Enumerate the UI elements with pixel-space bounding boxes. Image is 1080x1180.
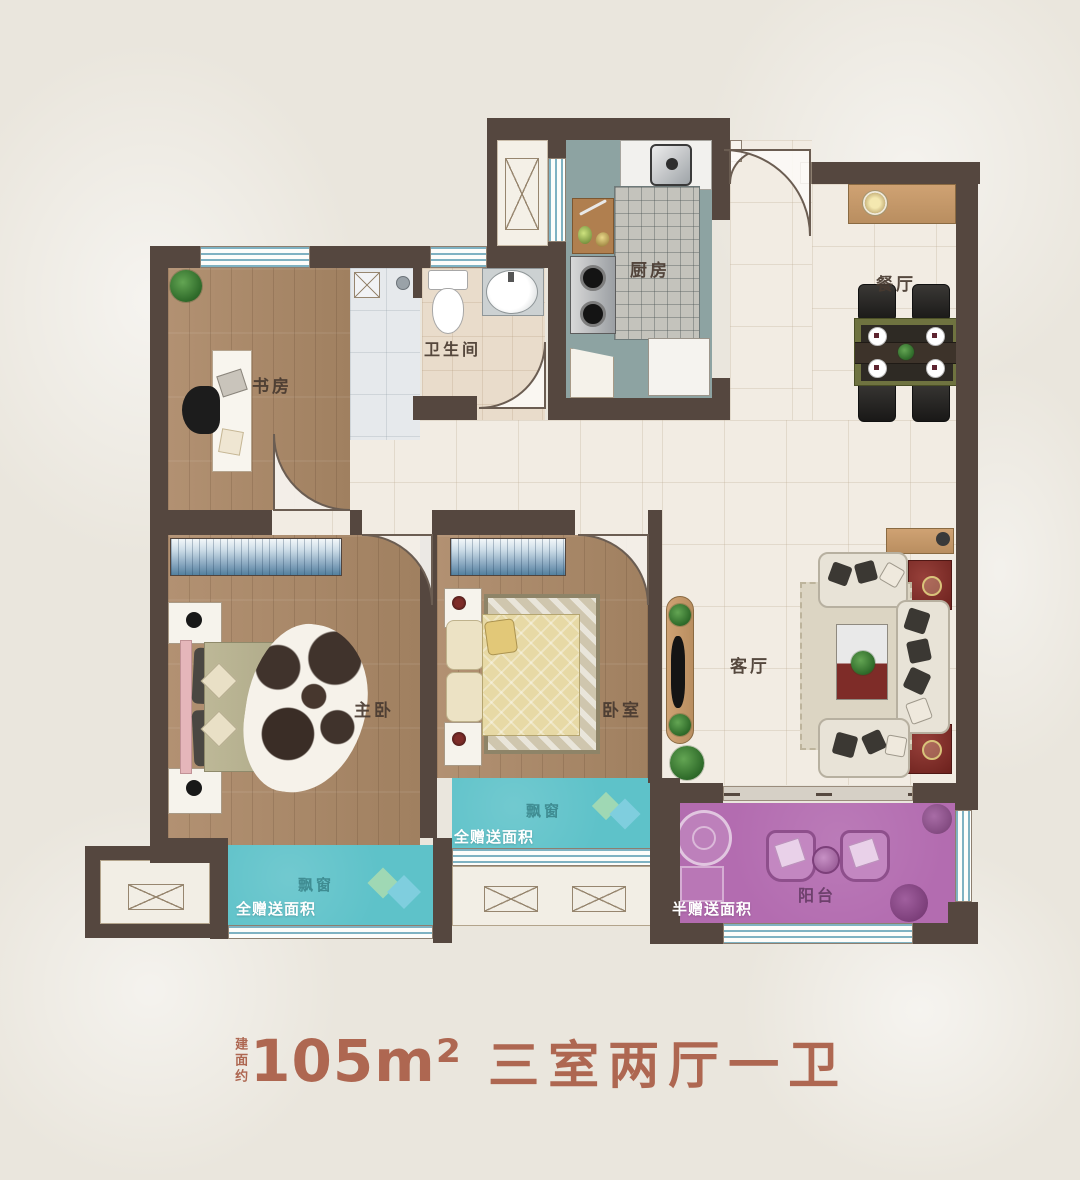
bay-window-label: 飘窗 — [298, 874, 334, 895]
dining-chair — [912, 284, 950, 322]
balcony-bottom-window — [723, 923, 913, 944]
wall — [955, 783, 978, 810]
room-label-bathroom: 卫生间 — [424, 336, 481, 360]
bed-pillow — [446, 672, 484, 722]
sofa-pillow — [884, 734, 907, 757]
title-layout: 三室两厅一卫 — [488, 1024, 848, 1098]
sofa-pillow — [827, 561, 853, 587]
sofa-pillow — [832, 732, 859, 759]
room-label-study: 书房 — [252, 372, 292, 397]
wall — [948, 902, 978, 944]
door-post — [730, 140, 742, 162]
bedroom2-wardrobe — [450, 538, 566, 576]
gift-area-label-full: 全赠送面积 — [236, 898, 316, 919]
dining-chair — [912, 380, 950, 422]
wall — [420, 535, 437, 838]
chair-towel — [848, 838, 880, 869]
nightstand-lamp — [452, 732, 466, 746]
ac-platform-center — [452, 866, 657, 926]
console-plant — [669, 604, 691, 626]
toilet-bowl — [432, 288, 464, 334]
stove — [570, 256, 616, 334]
lamp — [922, 740, 942, 760]
coffee-table-plant — [851, 651, 875, 675]
wall — [350, 510, 362, 535]
dining-chair — [858, 380, 896, 422]
room-label-living: 客厅 — [730, 652, 770, 677]
balcony-chair — [766, 830, 816, 882]
wall — [487, 140, 497, 246]
wall — [150, 246, 168, 863]
washing-machine-door — [692, 826, 716, 850]
tv — [671, 636, 685, 708]
decor-plate — [862, 190, 888, 216]
gift-area-label-full: 全赠送面积 — [454, 826, 534, 847]
master-wardrobe — [170, 538, 342, 576]
wall — [487, 118, 730, 140]
balcony-table — [812, 846, 840, 874]
wall — [650, 783, 723, 803]
washer-pedestal — [680, 866, 724, 902]
wall — [812, 162, 980, 184]
balcony-plant — [890, 884, 928, 922]
balcony-side-window — [955, 810, 972, 902]
sofa-pillow — [854, 560, 878, 584]
sofa-pillow — [905, 697, 933, 725]
wall — [712, 140, 730, 220]
bedroom2-bay-window-frame — [452, 848, 657, 866]
title-bar: 建面约 105m² 三室两厅一卫 — [0, 1024, 1080, 1098]
vegetables — [578, 226, 592, 244]
ac-platform-symbol — [572, 886, 626, 912]
wall — [432, 510, 575, 535]
study-plant — [170, 270, 202, 302]
plate — [868, 359, 887, 378]
lamp — [922, 576, 942, 596]
title-prefix: 建面约 — [232, 1037, 246, 1085]
bath-faucet — [508, 272, 514, 282]
floorplan-page: { "title": { "prefix": "建面约", "area": "1… — [0, 0, 1080, 1164]
plate — [926, 327, 945, 346]
balcony-chair — [840, 830, 890, 882]
toilet — [428, 270, 468, 290]
wall — [650, 803, 663, 944]
sofa-top — [818, 552, 908, 608]
study-window — [200, 246, 310, 268]
sofa-pillow — [878, 561, 905, 588]
wall — [648, 510, 662, 783]
table-centerpiece — [898, 344, 914, 360]
study-chair — [182, 386, 220, 434]
kitchen-shaft-window — [548, 158, 566, 242]
room-label-dining: 餐厅 — [876, 270, 916, 295]
fridge — [648, 338, 710, 396]
shower-head — [396, 276, 410, 290]
shelf-lamp — [936, 532, 950, 546]
wall — [85, 846, 228, 860]
bathroom-window — [430, 246, 487, 268]
kitchen-faucet — [666, 158, 678, 170]
console-plant — [669, 714, 691, 736]
title-area: 105m² — [250, 1027, 462, 1095]
wall — [663, 923, 723, 944]
sofa-bottom — [818, 718, 910, 778]
wall — [413, 268, 422, 298]
plate — [868, 327, 887, 346]
balcony-plant — [922, 804, 952, 834]
bay-window-label: 飘窗 — [526, 800, 562, 821]
master-bay-window-frame — [228, 925, 433, 939]
nightstand-lamp — [452, 596, 466, 610]
floor-drain — [354, 272, 380, 298]
master-bed-headboard — [180, 640, 192, 774]
door-post — [800, 162, 812, 184]
wall — [150, 510, 272, 535]
sofa-main — [896, 600, 950, 734]
room-label-bedroom2: 卧室 — [602, 696, 642, 721]
wall — [433, 838, 452, 943]
ac-platform-symbol — [484, 886, 538, 912]
room-label-kitchen: 厨房 — [630, 256, 670, 281]
blanket-pillow — [484, 618, 518, 656]
room-label-master: 主卧 — [354, 696, 394, 721]
sofa-pillow — [861, 729, 888, 756]
wall — [413, 396, 477, 420]
wall — [85, 924, 228, 938]
stove-burner — [580, 301, 606, 327]
ac-platform-symbol — [128, 884, 184, 910]
wall — [956, 184, 978, 784]
living-plant — [670, 746, 704, 780]
bed-pillow — [446, 620, 484, 670]
nightstand-lamp — [186, 612, 202, 628]
stove-burner — [580, 265, 606, 291]
wall — [560, 398, 730, 420]
plate — [926, 359, 945, 378]
room-label-balcony: 阳台 — [798, 882, 836, 906]
gift-area-label-half: 半赠送面积 — [672, 898, 752, 919]
balcony-sliding-door — [723, 786, 913, 801]
sofa-pillow — [902, 666, 931, 695]
nightstand-lamp — [186, 780, 202, 796]
sofa-pillow — [906, 638, 932, 664]
shaft-symbol — [505, 158, 539, 230]
desk-papers — [218, 428, 244, 455]
sofa-pillow — [903, 607, 931, 635]
wall — [913, 783, 958, 803]
chair-towel — [774, 838, 806, 869]
coffee-table — [836, 624, 888, 700]
